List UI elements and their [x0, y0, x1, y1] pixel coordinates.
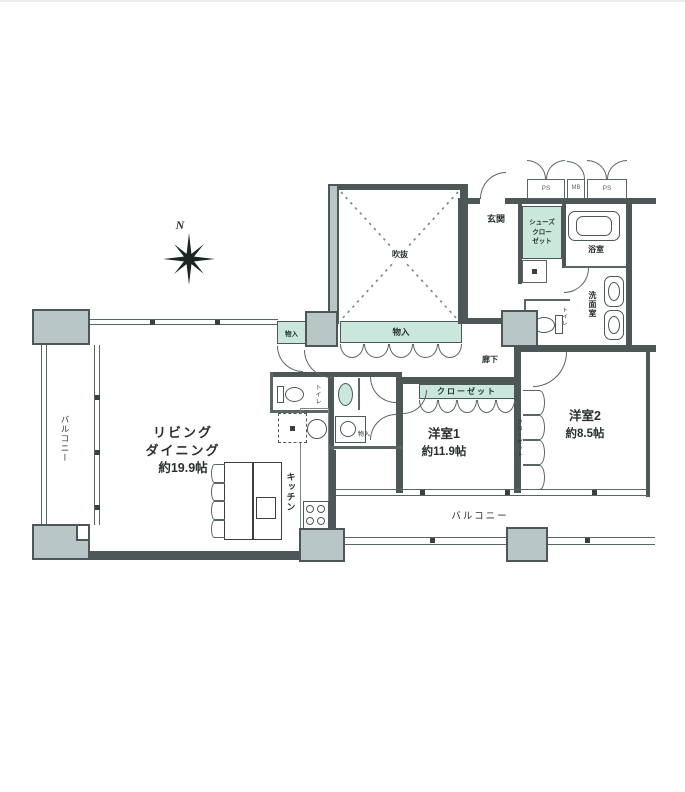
rail-tick [585, 538, 590, 543]
washbasin-bowl [608, 282, 620, 301]
living-label-2: ダイニング [141, 443, 225, 460]
stove-burner [306, 517, 314, 525]
storage-small-label: 物入 [285, 328, 298, 338]
window-tick [95, 450, 100, 455]
stove-burner [317, 505, 325, 513]
pillar [501, 310, 538, 347]
balcony-bottom-rail [345, 537, 655, 545]
entry-door-arc [480, 172, 506, 199]
kitchen-label: キッチン [285, 468, 297, 516]
window-tick [420, 490, 425, 495]
entry-storage-dot [532, 269, 537, 274]
bedroom1-wall-left [396, 377, 403, 493]
living-size-label: 約19.9帖 [145, 461, 221, 477]
utility-box-1: PS [527, 179, 565, 199]
outer-wall-right-lower [646, 352, 650, 497]
utility-box-3: PS [587, 179, 627, 199]
bedroom1-closet-doors [419, 400, 515, 413]
bedroom2-door-arc [533, 352, 567, 387]
stove-burner [306, 505, 314, 513]
balcony-left-label: バルコニー [58, 406, 72, 472]
bedroom2-size: 約8.5帖 [548, 427, 622, 442]
washroom-label: 洗面室 [586, 282, 599, 326]
utility-basin-icon [338, 383, 353, 406]
bathroom-label: 浴室 [582, 244, 610, 256]
utility-box-3-label: PS [588, 180, 626, 198]
toilet1-wall-left [270, 372, 273, 412]
rail-tick [430, 538, 435, 543]
storage-small-box: 物入 [277, 321, 306, 344]
bedroom2-closet-doors [523, 390, 545, 490]
kitchen-island-divider [252, 463, 254, 539]
pillar-notch [76, 526, 88, 541]
bedroom1-closet-label: クローゼット [437, 386, 497, 397]
shoes-closet-label-3: ゼット [532, 237, 552, 247]
outer-wall-right-upper [626, 198, 632, 350]
shoes-closet-label-1: シューズ [529, 218, 555, 228]
living-label-1: リビング [149, 425, 217, 442]
hallway-label: 廊下 [477, 354, 503, 366]
living-window-north [90, 319, 278, 325]
window-tick [95, 395, 100, 400]
kitchen-sink-icon [307, 419, 327, 439]
stove-burner [317, 517, 325, 525]
bedroom1-name: 洋室1 [412, 427, 476, 443]
bedroom2-closet-label: クローゼット [515, 410, 523, 466]
pillar [305, 311, 338, 347]
utility-door-arc [567, 161, 585, 179]
living-wall-south [86, 551, 310, 560]
pillar [299, 528, 345, 562]
bedroom1-closet-box: クローゼット [419, 384, 515, 399]
window-tick [215, 320, 220, 325]
pillar [32, 309, 90, 345]
shoes-closet-box: シューズ クロー ゼット [522, 206, 562, 259]
utility-door-arc-1 [370, 377, 396, 403]
toilet2-label: トイレ [560, 303, 568, 331]
utility-door-arc [587, 160, 607, 179]
toilet2-wall-top [524, 299, 570, 301]
utility-wall-bottom [328, 446, 402, 449]
window-tick [95, 505, 100, 510]
utility-divider [358, 378, 360, 410]
storage-main-box: 物入 [340, 321, 462, 343]
toilet1-label: トイレ [313, 380, 322, 408]
utility-box-2: MB [567, 179, 585, 199]
toilet1-tank [277, 386, 284, 403]
shoes-closet-label-2: クロー [532, 228, 552, 238]
kitchen-island-inset [256, 497, 276, 519]
bathroom-wall-left [562, 204, 566, 268]
balcony-left-rail [41, 315, 47, 558]
utility-door-arc-2 [370, 414, 396, 440]
hall-wall [458, 318, 503, 324]
entrance-label: 玄関 [480, 213, 512, 226]
washbasin2-bowl [608, 316, 620, 334]
bathtub-inner [576, 216, 612, 236]
void-label: 吹抜 [384, 247, 416, 262]
pillar [506, 527, 548, 562]
top-artifact-line [0, 0, 685, 2]
floor-plan: N 吹抜 物入 PS MB PS [0, 0, 685, 792]
compass-north-icon [161, 231, 217, 287]
kitchen-island-scallops [211, 464, 225, 538]
living-window-west [94, 345, 100, 525]
bedroom1-wall-top [396, 377, 521, 384]
window-tick [150, 320, 155, 325]
bedroom2-wall-top [514, 345, 656, 352]
entry-wall-left [458, 198, 464, 324]
compass-north-label: N [168, 218, 192, 232]
bedroom-window-south [336, 489, 648, 496]
utility-door-arc [527, 160, 546, 179]
storage-small-door-arc [277, 346, 303, 372]
utility-door-arc [546, 160, 565, 179]
fridge-space-dot [290, 426, 295, 431]
balcony-bottom-label: バルコニー [446, 510, 514, 524]
storage-main-folding-doors [340, 344, 462, 358]
window-tick [505, 490, 510, 495]
void-wall-left [328, 184, 339, 324]
utility-door-arc [607, 160, 627, 179]
window-tick [592, 490, 597, 495]
storage-main-label: 物入 [392, 327, 409, 338]
utility-box-2-label: MB [568, 180, 584, 198]
toilet1-icon [285, 387, 304, 402]
utility-box-1-label: PS [528, 180, 564, 198]
bedroom1-size: 約11.9帖 [408, 445, 480, 460]
bedroom2-name: 洋室2 [550, 409, 620, 425]
